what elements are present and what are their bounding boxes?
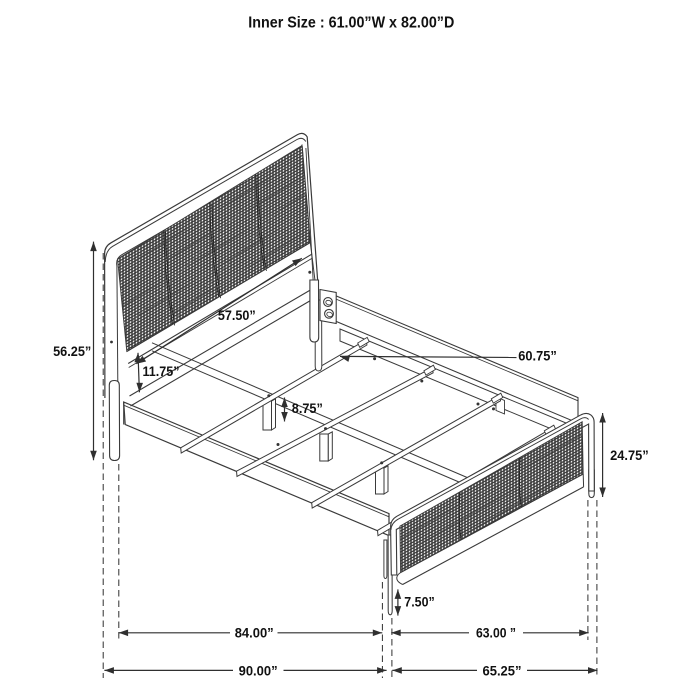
svg-text:90.00”: 90.00” — [239, 662, 278, 678]
svg-text:60.75”: 60.75” — [518, 347, 557, 363]
svg-text:Inner Size : 61.00”W x 82.00”D: Inner Size : 61.00”W x 82.00”D — [248, 14, 454, 31]
svg-text:7.50”: 7.50” — [404, 594, 434, 610]
svg-text:57.50”: 57.50” — [218, 307, 256, 323]
svg-text:24.75”: 24.75” — [610, 447, 649, 463]
svg-text:56.25”: 56.25” — [53, 343, 91, 359]
svg-text:65.25”: 65.25” — [483, 662, 522, 678]
svg-text:63.00 ”: 63.00 ” — [476, 624, 516, 640]
svg-text:8.75”: 8.75” — [292, 400, 323, 416]
svg-text:84.00”: 84.00” — [235, 624, 274, 640]
svg-text:11.75”: 11.75” — [143, 363, 180, 379]
